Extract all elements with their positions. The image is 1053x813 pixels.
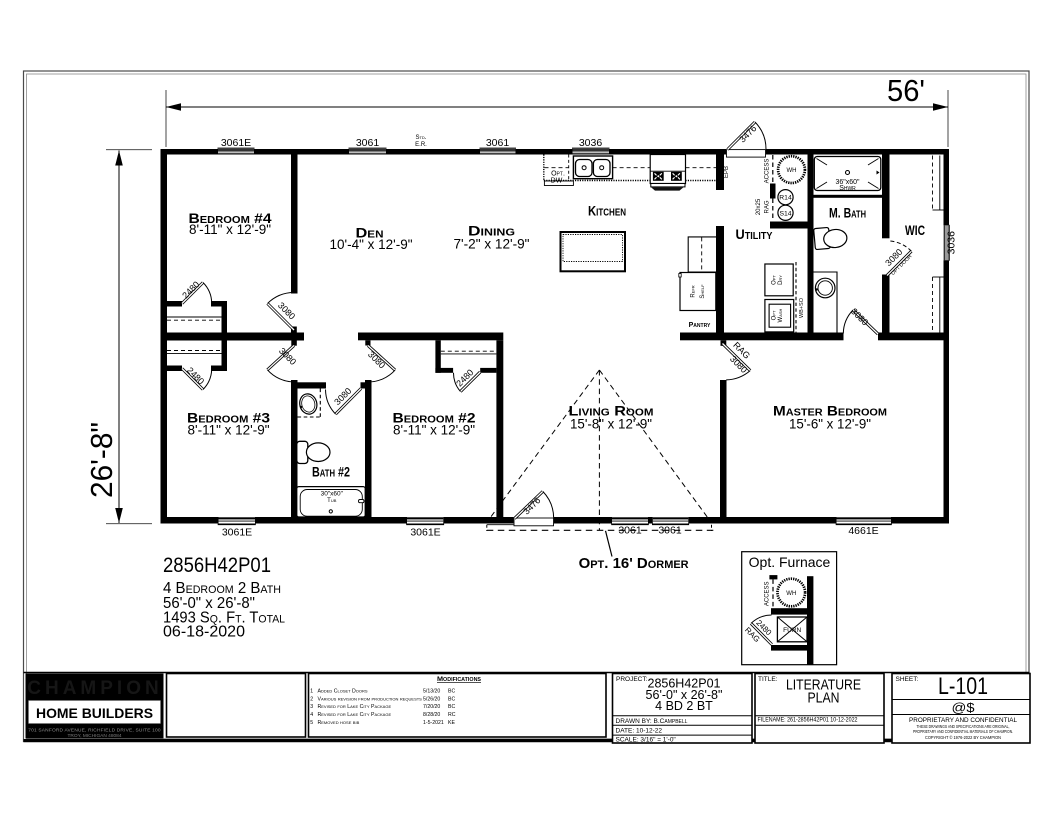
svg-text:TROY, MICHIGAN 48084: TROY, MICHIGAN 48084 (67, 733, 121, 739)
svg-text:SCALE: 3/16" = 1'-0": SCALE: 3/16" = 1'-0" (616, 736, 677, 743)
svg-text:4661E: 4661E (848, 525, 878, 537)
svg-text:5/13/20: 5/13/20 (423, 689, 440, 695)
svg-text:Revised for Lake City Package: Revised for Lake City Package (318, 712, 392, 718)
svg-text:WB+SO: WB+SO (799, 297, 805, 318)
svg-text:3061: 3061 (618, 525, 642, 537)
svg-text:@$: @$ (952, 700, 976, 715)
svg-text:10'-4" x 12'-9": 10'-4" x 12'-9" (330, 237, 413, 252)
svg-text:RAG: RAG (765, 200, 771, 213)
svg-text:PROPRIETARY AND CONFIDENTIAL M: PROPRIETARY AND CONFIDENTIAL MATERIALS O… (913, 729, 1013, 734)
svg-text:Pantry: Pantry (689, 322, 711, 329)
svg-text:Opt: Opt (772, 310, 778, 320)
svg-text:Wash: Wash (778, 308, 784, 322)
svg-text:2856H42P01: 2856H42P01 (163, 554, 271, 577)
svg-text:4 BD 2 BT: 4 BD 2 BT (655, 699, 713, 713)
svg-text:WH: WH (787, 168, 797, 174)
svg-text:BC: BC (448, 689, 455, 695)
svg-text:R14: R14 (779, 195, 792, 202)
svg-text:Opt.: Opt. (551, 171, 565, 178)
svg-text:M. Bath: M. Bath (829, 205, 866, 221)
svg-text:EPB: EPB (724, 166, 730, 178)
svg-text:E.R.: E.R. (415, 142, 427, 148)
svg-text:3061: 3061 (356, 137, 380, 149)
svg-text:SHEET:: SHEET: (896, 676, 919, 683)
svg-text:20x25: 20x25 (756, 198, 762, 215)
svg-text:PLAN: PLAN (808, 690, 840, 707)
svg-text:Added Closet Doors: Added Closet Doors (318, 689, 368, 695)
svg-text:30"x60": 30"x60" (321, 491, 344, 498)
svg-text:Opt: Opt (772, 275, 778, 285)
svg-text:KE: KE (448, 720, 455, 726)
svg-text:3061E: 3061E (410, 527, 440, 539)
svg-text:COPYRIGHT © 1976-2022 BY CHAMP: COPYRIGHT © 1976-2022 BY CHAMPION (925, 734, 1001, 741)
svg-text:3061E: 3061E (222, 527, 252, 539)
svg-text:Opt. 16' Dormer: Opt. 16' Dormer (579, 555, 689, 572)
svg-text:3: 3 (310, 704, 313, 710)
svg-text:7'-2" x 12'-9": 7'-2" x 12'-9" (454, 237, 530, 252)
svg-text:3061: 3061 (486, 137, 510, 149)
svg-text:06-18-2020: 06-18-2020 (163, 624, 245, 641)
svg-text:15'-8" x 12'-9": 15'-8" x 12'-9" (570, 417, 652, 432)
svg-text:Various revision from producti: Various revision from production request… (318, 696, 423, 702)
svg-text:S14: S14 (779, 210, 791, 217)
svg-text:BC: BC (448, 704, 455, 710)
svg-text:Dry: Dry (778, 275, 784, 285)
svg-text:3061: 3061 (658, 525, 682, 537)
svg-text:8'-11" x 12'-9": 8'-11" x 12'-9" (189, 222, 271, 237)
svg-text:1: 1 (310, 689, 313, 695)
svg-text:8/28/20: 8/28/20 (423, 712, 440, 718)
svg-text:DATE: 10-12-22: DATE: 10-12-22 (616, 728, 663, 735)
svg-text:WIC: WIC (905, 222, 925, 238)
svg-text:15'-6" x 12'-9": 15'-6" x 12'-9" (789, 417, 871, 432)
svg-text:3061E: 3061E (221, 137, 251, 149)
svg-text:FILENAME: 261-2856H42P01 10-12: FILENAME: 261-2856H42P01 10-12-2022 (758, 716, 858, 723)
svg-text:701 SANFORD AVENUE, RICHFIELD: 701 SANFORD AVENUE, RICHFIELD DRIVE, SUI… (28, 728, 161, 734)
svg-text:RC: RC (448, 712, 456, 718)
svg-text:26'-8": 26'-8" (84, 422, 119, 498)
svg-text:PROPRIETARY AND CONFIDENTIAL: PROPRIETARY AND CONFIDENTIAL (909, 717, 1017, 724)
svg-text:CHAMPION: CHAMPION (27, 678, 162, 699)
svg-text:Revised for Lake City Package: Revised for Lake City Package (318, 704, 392, 710)
svg-text:Shelf: Shelf (700, 284, 706, 299)
svg-text:Removed hose bib: Removed hose bib (318, 720, 360, 726)
svg-text:DW: DW (551, 178, 563, 185)
svg-text:Shwr: Shwr (839, 185, 856, 192)
svg-text:56': 56' (887, 73, 925, 108)
svg-text:PROJECT:: PROJECT: (616, 676, 648, 683)
svg-text:DRAWN BY: B.Campbell: DRAWN BY: B.Campbell (616, 718, 688, 725)
svg-text:Tub: Tub (327, 498, 337, 504)
svg-text:Bath #2: Bath #2 (312, 464, 350, 480)
svg-text:1-5-2021: 1-5-2021 (423, 720, 444, 726)
svg-text:Std.: Std. (415, 135, 426, 141)
svg-text:8'-11" x 12'-9": 8'-11" x 12'-9" (188, 423, 270, 438)
svg-text:2: 2 (310, 696, 313, 702)
svg-text:WH: WH (786, 591, 796, 597)
svg-text:ACCESS: ACCESS (765, 159, 771, 184)
svg-text:HOME BUILDERS: HOME BUILDERS (36, 705, 153, 721)
svg-text:TITLE:: TITLE: (758, 676, 778, 683)
svg-text:5/26/20: 5/26/20 (423, 696, 440, 702)
svg-text:ACCESS: ACCESS (765, 581, 771, 606)
svg-text:Modifications: Modifications (437, 676, 482, 683)
svg-text:BC: BC (448, 696, 455, 702)
svg-text:3036: 3036 (946, 231, 958, 255)
svg-text:Refr: Refr (691, 285, 697, 297)
svg-text:Kitchen: Kitchen (588, 203, 626, 219)
svg-text:FURN: FURN (783, 627, 801, 634)
svg-text:8'-11" x 12'-9": 8'-11" x 12'-9" (393, 423, 475, 438)
svg-text:Opt. Furnace: Opt. Furnace (749, 554, 831, 570)
svg-text:L-101: L-101 (938, 673, 988, 700)
svg-text:5: 5 (310, 720, 313, 726)
svg-text:7/20/20: 7/20/20 (423, 704, 440, 710)
svg-text:Utility: Utility (736, 226, 773, 242)
svg-text:3036: 3036 (579, 137, 603, 149)
svg-text:4: 4 (310, 712, 313, 718)
